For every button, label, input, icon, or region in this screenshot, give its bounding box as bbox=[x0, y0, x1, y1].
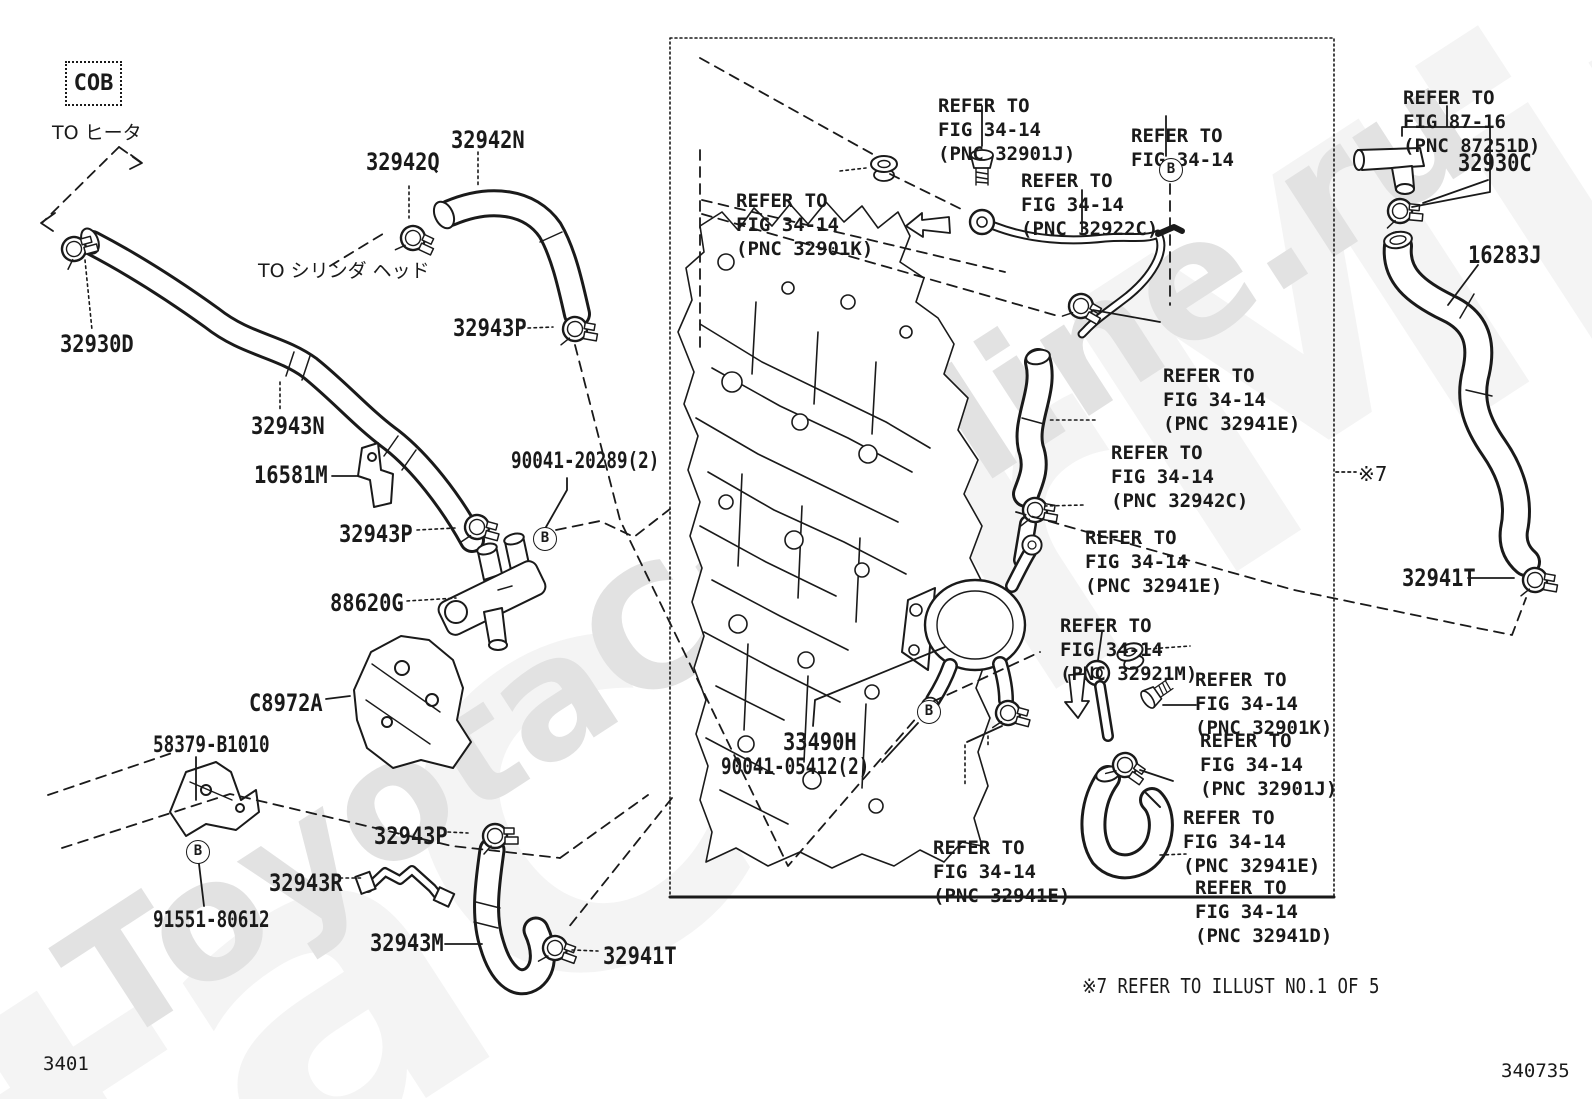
callout-b-3: B bbox=[917, 700, 941, 724]
part-label-58379-b1010[interactable]: 58379-B1010 bbox=[153, 735, 270, 757]
part-label-16283j[interactable]: 16283J bbox=[1468, 243, 1542, 267]
part-label-32943p-mid[interactable]: 32943P bbox=[339, 522, 413, 546]
part-label-32942q[interactable]: 32942Q bbox=[366, 150, 440, 174]
part-label-90041-05412[interactable]: 90041-05412(2) bbox=[721, 757, 869, 779]
refer-note-32901k-top: REFER TOFIG 34-14(PNC 32901K) bbox=[736, 141, 873, 261]
part-label-16581m[interactable]: 16581M bbox=[254, 463, 328, 487]
refer-note-32941e-4: REFER TOFIG 34-14(PNC 32941E) bbox=[933, 788, 1070, 908]
refer-note-32941d: REFER TOFIG 34-14(PNC 32941D) bbox=[1195, 828, 1332, 948]
part-label-91551-80612[interactable]: 91551-80612 bbox=[153, 910, 270, 932]
part-label-33490h[interactable]: 33490H bbox=[783, 730, 857, 754]
callout-b-2: B bbox=[533, 527, 557, 551]
part-label-32943m[interactable]: 32943M bbox=[370, 931, 444, 955]
refer-note-87251d: REFER TOFIG 87-16(PNC 87251D) bbox=[1403, 38, 1540, 158]
part-label-32943n[interactable]: 32943N bbox=[251, 414, 325, 438]
refer-note-plain: REFER TOFIG 34-14 bbox=[1131, 76, 1234, 172]
callout-b-1: B bbox=[1159, 158, 1183, 182]
part-label-32943r[interactable]: 32943R bbox=[269, 871, 343, 895]
part-label-32942n[interactable]: 32942N bbox=[451, 128, 525, 152]
part-label-88620g[interactable]: 88620G bbox=[330, 591, 404, 615]
callout-b-4: B bbox=[186, 840, 210, 864]
part-label-32941t-right[interactable]: 32941T bbox=[1402, 566, 1476, 590]
part-label-32941t-bottom[interactable]: 32941T bbox=[603, 944, 677, 968]
refer-note-32921m: REFER TOFIG 34-14(PNC 32921M) bbox=[1060, 566, 1197, 686]
dashed-arrowheads bbox=[41, 155, 142, 231]
footnote: ※7 REFER TO ILLUST NO.1 OF 5 bbox=[1082, 974, 1379, 998]
to-cylinder-head-note: TO シリンダ ヘッド bbox=[258, 262, 430, 281]
part-label-32943p-bottom[interactable]: 32943P bbox=[374, 824, 448, 848]
part-label-90041-20289[interactable]: 90041-20289(2) bbox=[511, 451, 659, 473]
figure-number-right: 340735 bbox=[1501, 1060, 1570, 1082]
to-heater-note: TO ヒータ bbox=[52, 124, 142, 143]
ref7-marker: ※7 bbox=[1358, 462, 1387, 486]
page-number-left: 3401 bbox=[43, 1053, 89, 1075]
part-label-c8972a[interactable]: C8972A bbox=[249, 691, 323, 715]
cob-code-box: COB bbox=[65, 61, 122, 106]
part-label-32930d[interactable]: 32930D bbox=[60, 332, 134, 356]
parts-diagram-page: ToyotaCarMine.ru ToyotaCarMine.ru bbox=[0, 0, 1592, 1099]
part-label-32943p-top[interactable]: 32943P bbox=[453, 316, 527, 340]
arrow-left-icon bbox=[906, 213, 950, 237]
